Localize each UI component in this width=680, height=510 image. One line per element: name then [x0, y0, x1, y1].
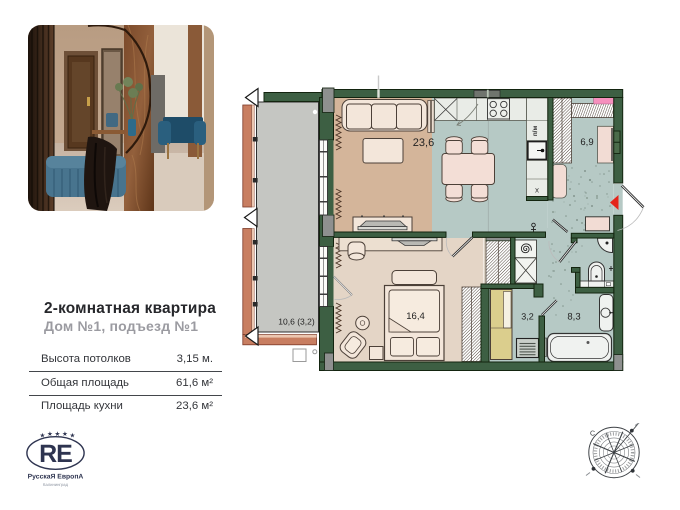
- svg-text:3,2: 3,2: [521, 312, 534, 322]
- svg-text:х: х: [535, 186, 539, 195]
- svg-text:16,4: 16,4: [406, 311, 425, 322]
- svg-text:10,6 (3,2): 10,6 (3,2): [278, 317, 315, 327]
- svg-text:8,3: 8,3: [567, 312, 580, 323]
- svg-text:6,9: 6,9: [580, 137, 593, 148]
- svg-text:23,6: 23,6: [413, 137, 434, 149]
- svg-text:п/м: п/м: [532, 126, 539, 137]
